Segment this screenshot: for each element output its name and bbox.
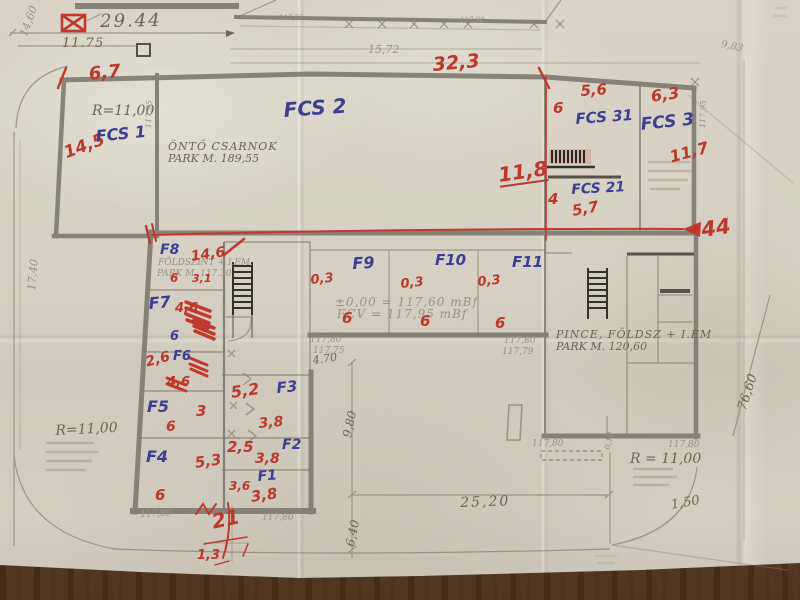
wall-dim-117-80c: 117,80 (140, 509, 172, 520)
wall-dim-117-80d: 117,80 (262, 514, 294, 523)
stairs-corridor-icon (233, 262, 252, 338)
red-dim-4-6b: 4,6 (167, 376, 190, 389)
red-dim-4: 4 (548, 192, 558, 207)
dim-17-40: 17,40 (26, 259, 40, 291)
pencil-arrowhead (226, 30, 235, 37)
room-label-f9: F9 (352, 255, 375, 272)
red-dim-3-8b: 3,8 (255, 452, 280, 466)
wall-dim-117-79: 117,79 (502, 348, 534, 357)
elevation-117-98-top: 117,98 (460, 17, 485, 24)
dim-11-75: 11.75 (62, 37, 104, 50)
red-dim-32-3: 32,3 (432, 52, 480, 75)
room-label-fcs2: FCS 2 (283, 96, 347, 120)
red-dim-6-fcs31: 6 (553, 101, 563, 116)
red-dim-3: 3 (196, 404, 206, 419)
blue-dim-6-f7: 6 (170, 330, 179, 343)
red-dim-6-f9: 6 (342, 311, 352, 326)
radius-site-left: R=11,00 (55, 421, 118, 438)
red-dim-5-2: 5,2 (230, 381, 260, 401)
room-label-f10: F10 (435, 253, 466, 268)
red-dim-3-8a: 3,8 (258, 415, 284, 431)
red-dim-1-3: 1,3 (197, 549, 220, 562)
wall-dim-117-80e: 117,80 (532, 440, 564, 449)
room-label-f2: F2 (282, 438, 301, 452)
pince-note-line2: PARK M. 120,60 (556, 341, 647, 352)
stairs-right-wing-icon (588, 268, 607, 319)
red-dim-6-f8: 6 (170, 272, 178, 284)
hall-park-level: PARK M. 189,55 (168, 153, 259, 164)
red-dim-5-3: 5,3 (194, 452, 222, 471)
red-dim-6-f5: 6 (166, 420, 176, 434)
red-dim-6-3: 6,3 (650, 85, 680, 105)
room-label-f3: F3 (276, 379, 298, 396)
room-label-f7: F7 (148, 294, 171, 312)
red-dim-0-3c: 0,3 (477, 274, 501, 289)
red-dim-6-f4: 6 (155, 488, 165, 503)
wall-dim-117-80b: 117,80 (504, 337, 536, 346)
wall-elevation-left: 117,95 (145, 100, 154, 128)
red-dim-6-f10: 6 (420, 314, 430, 329)
red-dim-21: 21 (210, 506, 241, 531)
red-dim-5-7: 5,7 (571, 199, 600, 218)
room-label-f5: F5 (147, 399, 169, 415)
floor-plan-photo: 29.44 11.75 14,60 17,40 15,72 9,83 117,9… (0, 0, 800, 600)
red-dim-44: 44 (700, 216, 732, 241)
radius-right-area: R = 11,00 (630, 452, 701, 466)
dim-15-72: 15,72 (368, 44, 400, 55)
red-dim-4-6: 4,6 (175, 302, 198, 315)
room-label-f6: F6 (173, 350, 191, 363)
red-dim-0-3a: 0,3 (310, 272, 334, 287)
wall-dim-117-80f: 117,80 (668, 441, 700, 450)
hall-name-onto-csarnok: ÖNTŐ CSARNOK (168, 141, 278, 152)
stairs-fcs31-icon (547, 149, 595, 167)
room-label-f1: F1 (257, 468, 277, 484)
red-dim-0-3b: 0,3 (400, 276, 424, 291)
room-label-fcs21: FCS 21 (571, 180, 625, 197)
red-crossed-box-icon (62, 15, 85, 31)
pince-note-line1: PINCE, FÖLDSZ + I.EM (556, 329, 712, 340)
wall-elevation-right: 117,95 (699, 100, 708, 128)
dim-29-44: 29.44 (100, 12, 162, 31)
dim-4-70: 4.70 (312, 352, 338, 366)
red-dim-3-8c: 3,8 (250, 486, 278, 505)
red-dim-3-1: 3,1 (192, 273, 212, 284)
red-dim-2-5: 2,5 (227, 440, 254, 455)
room-label-f11: F11 (512, 255, 543, 270)
red-dim-6-7: 6,7 (88, 63, 122, 84)
wall-dim-117-80a: 117,80 (310, 336, 342, 345)
red-dim-6-f11: 6 (495, 316, 505, 331)
elevation-117-95-top: 117,95 (279, 15, 304, 22)
room-label-f4: F4 (146, 449, 168, 465)
room-label-fcs31: FCS 31 (575, 108, 634, 127)
elevation-note-line2: FCV = 117,95 mBf (337, 308, 467, 320)
room-label-f8: F8 (160, 243, 179, 257)
dim-25-20: 25,20 (460, 494, 511, 510)
red-dim-5-6: 5,6 (580, 82, 608, 99)
red-dim-3-6: 3,6 (229, 480, 250, 492)
